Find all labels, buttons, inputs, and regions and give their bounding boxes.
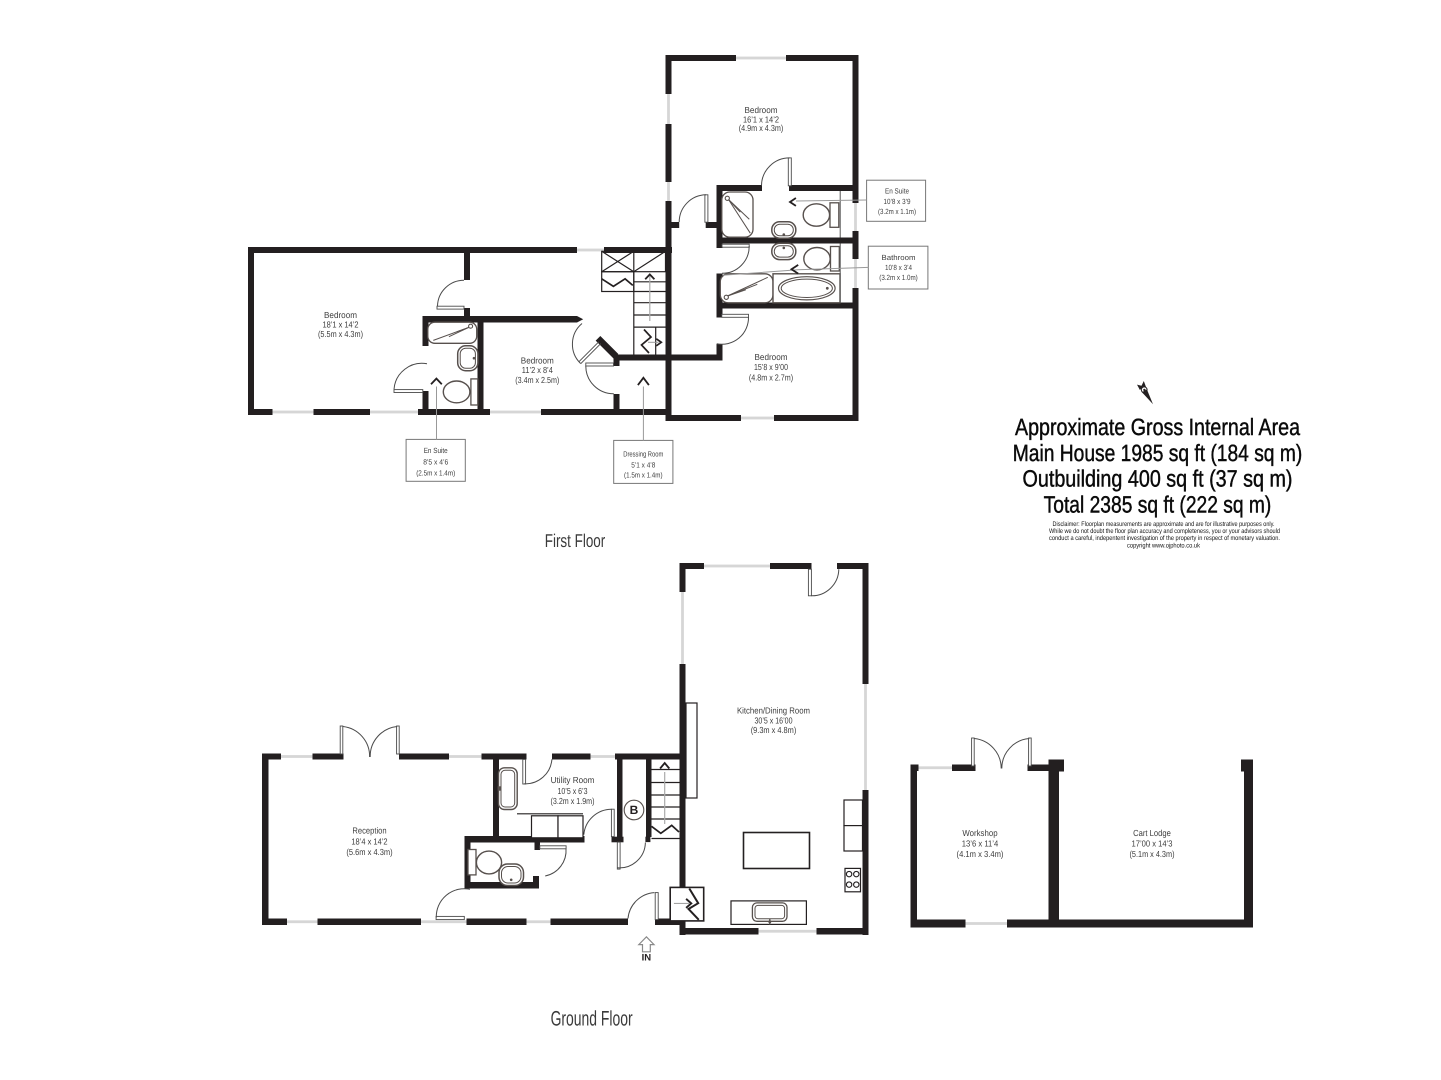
svg-text:11’2 x 8’4: 11’2 x 8’4 [522,365,553,375]
svg-text:8’5 x 4’6: 8’5 x 4’6 [423,458,448,467]
svg-text:(3.2m x 1.9m): (3.2m x 1.9m) [551,796,595,806]
svg-text:Approximate Gross Internal Are: Approximate Gross Internal Area [1015,414,1301,440]
svg-text:Ground Floor: Ground Floor [551,1007,633,1030]
svg-text:Workshop: Workshop [962,828,997,838]
svg-text:Dressing Room: Dressing Room [623,450,663,459]
svg-text:17’00 x 14’3: 17’00 x 14’3 [1132,839,1173,849]
svg-text:30’5 x 16’00: 30’5 x 16’00 [755,715,793,725]
svg-text:(3.2m x 1.0m): (3.2m x 1.0m) [879,273,918,282]
svg-text:Bedroom: Bedroom [521,356,554,366]
svg-text:En Suite: En Suite [424,446,448,455]
svg-text:First Floor: First Floor [545,530,606,551]
svg-text:IN: IN [642,953,652,964]
svg-text:(4.8m x 2.7m): (4.8m x 2.7m) [749,373,793,383]
svg-text:(9.3m x 4.8m): (9.3m x 4.8m) [751,725,797,735]
svg-text:(2.5m x 1.4m): (2.5m x 1.4m) [416,468,455,477]
svg-text:Cart Lodge: Cart Lodge [1133,828,1171,838]
svg-text:5’1 x 4’8: 5’1 x 4’8 [631,460,655,469]
svg-text:Total 2385 sq ft (222 sq m): Total 2385 sq ft (222 sq m) [1044,491,1272,517]
svg-text:10’8 x 3’9: 10’8 x 3’9 [884,197,911,206]
svg-text:(5.5m x 4.3m): (5.5m x 4.3m) [318,329,363,339]
svg-text:Bathroom: Bathroom [882,253,916,262]
svg-text:While we do not doubt the floo: While we do not doubt the floor plan acc… [1049,528,1280,535]
svg-text:B: B [630,803,639,817]
svg-text:(3.4m x 2.5m): (3.4m x 2.5m) [515,375,559,385]
svg-text:Kitchen/Dining Room: Kitchen/Dining Room [737,705,810,715]
svg-text:Reception: Reception [352,825,386,835]
svg-text:Disclaimer: Floorplan measurem: Disclaimer: Floorplan measurements are a… [1053,521,1275,528]
svg-text:(3.2m x 1.1m): (3.2m x 1.1m) [878,207,916,216]
svg-text:(5.6m x 4.3m): (5.6m x 4.3m) [346,847,392,857]
svg-text:15’8 x 9’00: 15’8 x 9’00 [754,362,788,372]
svg-text:Utility Room: Utility Room [551,775,595,785]
svg-text:Bedroom: Bedroom [755,352,788,362]
svg-text:18’4 x 14’2: 18’4 x 14’2 [351,836,387,846]
svg-text:(5.1m x 4.3m): (5.1m x 4.3m) [1130,849,1175,859]
svg-text:(1.5m x 1.4m): (1.5m x 1.4m) [624,471,663,480]
svg-text:13’6 x 11’4: 13’6 x 11’4 [962,839,999,849]
svg-text:conduct a careful, indepentent: conduct a careful, indepentent investiga… [1049,535,1280,542]
svg-text:Bedroom: Bedroom [324,310,357,320]
svg-text:En Suite: En Suite [885,187,909,196]
svg-text:copyright www.ojphoto.co.uk: copyright www.ojphoto.co.uk [1127,543,1201,550]
svg-text:Main House 1985 sq ft (184 sq: Main House 1985 sq ft (184 sq m) [1013,440,1303,466]
svg-text:(4.1m x 3.4m): (4.1m x 3.4m) [957,849,1004,859]
svg-text:10’5 x 6’3: 10’5 x 6’3 [558,786,588,796]
svg-text:10’8 x 3’4: 10’8 x 3’4 [885,263,912,272]
svg-text:Outbuilding 400 sq ft (37 sq m: Outbuilding 400 sq ft (37 sq m) [1023,466,1293,492]
svg-text:(4.9m x 4.3m): (4.9m x 4.3m) [739,123,784,133]
